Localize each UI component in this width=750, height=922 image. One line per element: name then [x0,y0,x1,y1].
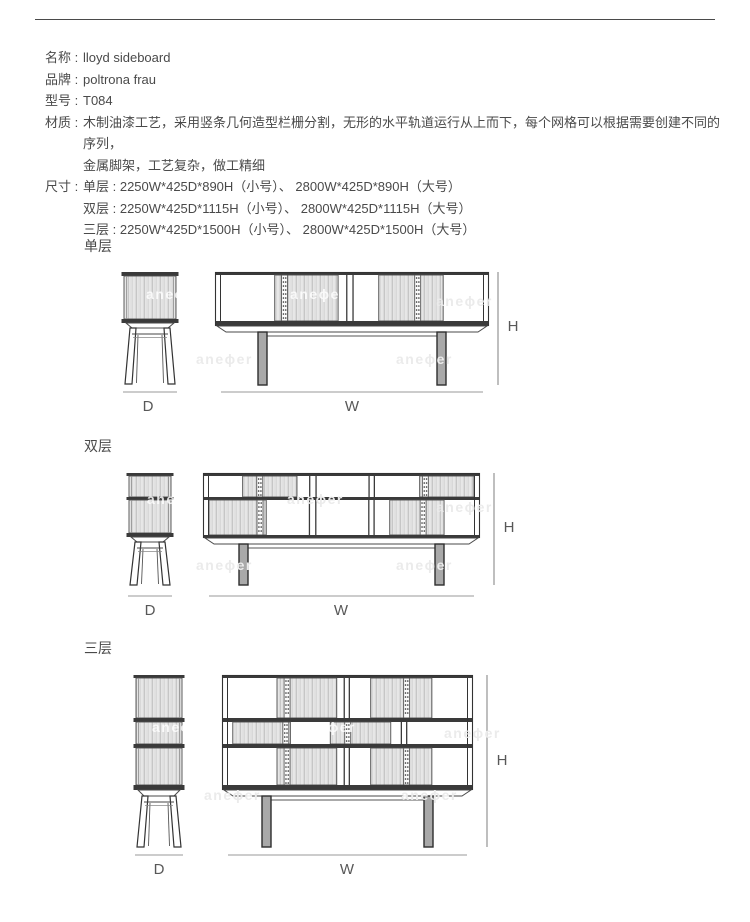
spec-sheet-page: 名称 : lloyd sideboard 品牌 : poltrona frau … [0,0,750,922]
height-dim-label: H [494,519,524,536]
section-2-front-view [203,473,494,596]
depth-dim-label: D [135,602,165,619]
height-dim-label: H [487,752,517,769]
section-1-side-view [122,272,179,392]
width-dim-label: W [326,602,356,619]
section-3-side-view [134,675,185,855]
technical-drawings-layer [0,0,750,922]
section-1-front-view [215,272,498,392]
section-2-side-view [127,473,174,596]
width-dim-label: W [337,398,367,415]
width-dim-label: W [332,861,362,878]
height-dim-label: H [498,318,528,335]
depth-dim-label: D [144,861,174,878]
depth-dim-label: D [133,398,163,415]
section-3-front-view [222,675,487,855]
